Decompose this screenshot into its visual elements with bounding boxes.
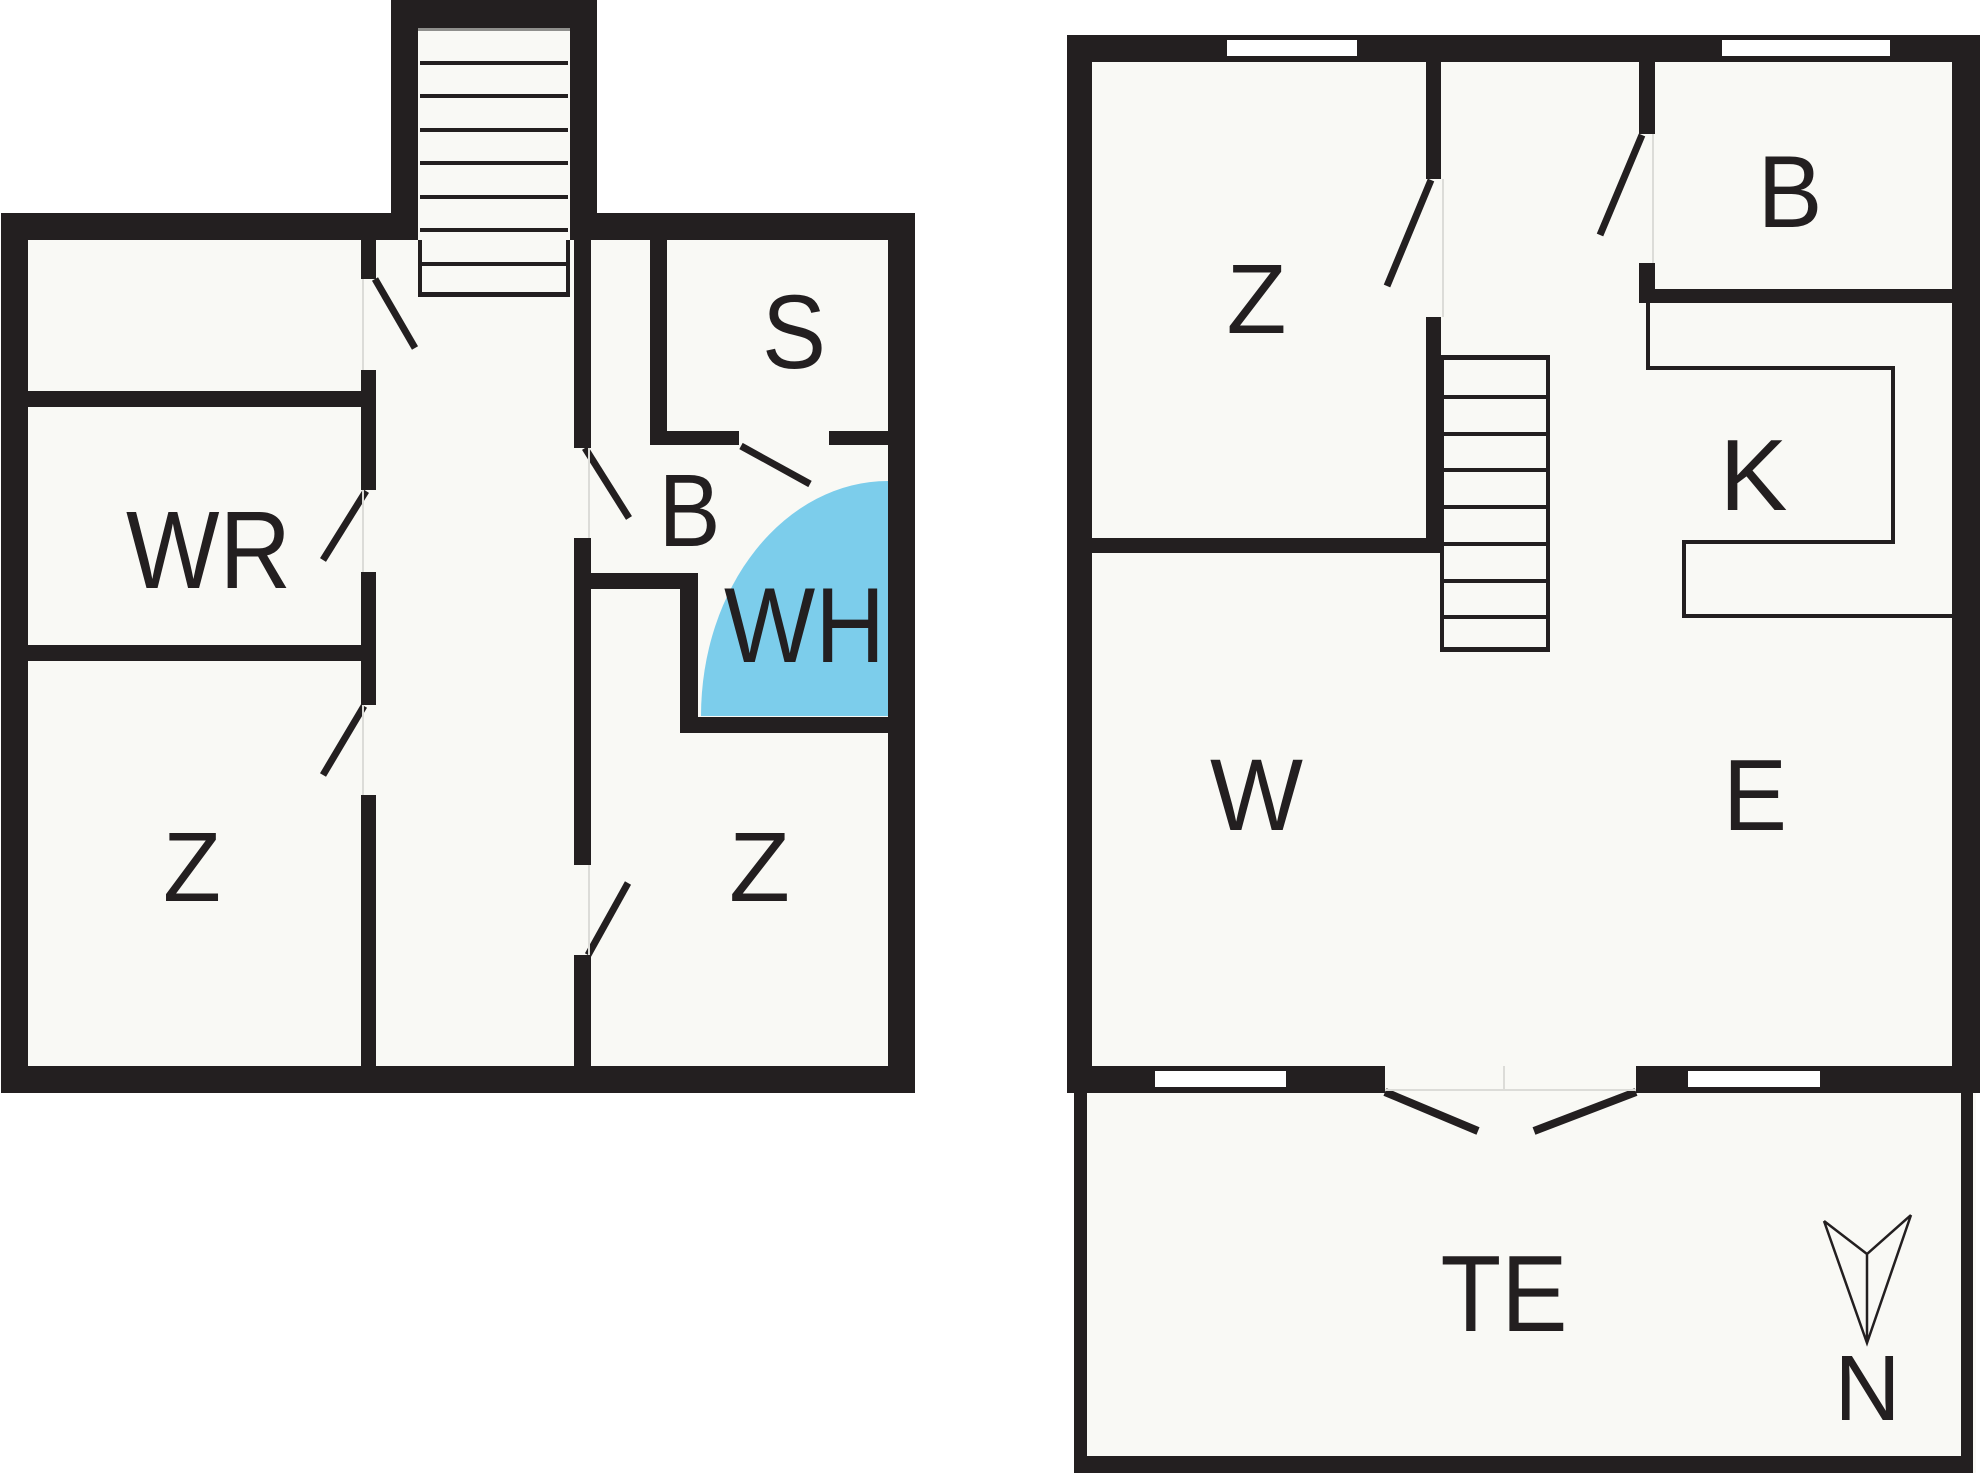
svg-text:N: N [1835,1336,1901,1440]
svg-text:WR: WR [126,489,291,612]
svg-text:B: B [1758,135,1823,249]
svg-text:TE: TE [1441,1233,1568,1355]
svg-text:W: W [1210,738,1303,852]
svg-text:K: K [1720,420,1788,532]
svg-text:Z: Z [163,812,221,922]
svg-text:Z: Z [729,812,790,922]
svg-text:WH: WH [724,565,885,685]
svg-text:Z: Z [1227,244,1287,354]
svg-text:E: E [1723,740,1787,852]
svg-text:B: B [659,453,721,568]
svg-text:S: S [762,274,826,391]
